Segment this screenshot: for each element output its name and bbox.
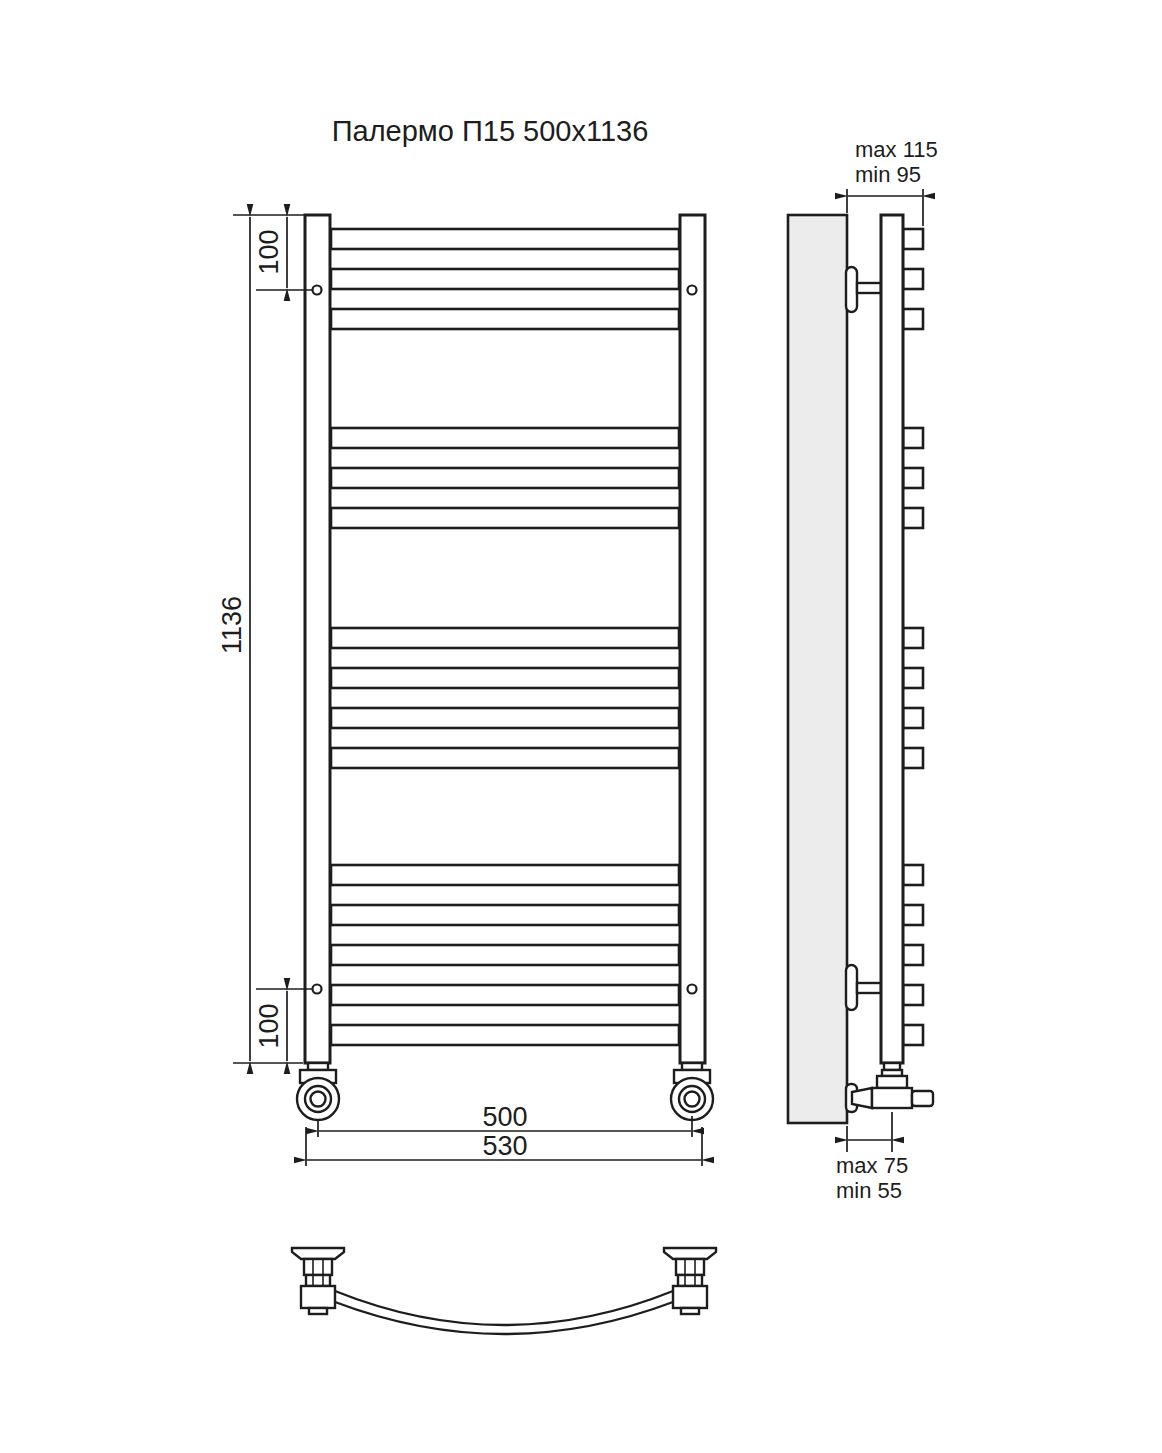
bracket-arm	[857, 283, 881, 293]
front-dimensions: 1136 100 100 500 530	[217, 215, 702, 1166]
dim-depth-top-max-label: max 115	[855, 137, 938, 162]
front-rung	[331, 508, 679, 528]
drawing-canvas: Палермо П15 500х1136 1136 100 100 500 53…	[0, 0, 1162, 1453]
mount-hole	[688, 286, 697, 295]
side-rung-stub	[903, 628, 923, 648]
valve-cone	[852, 1088, 872, 1108]
mount-hole	[313, 286, 322, 295]
dim-500-label: 500	[482, 1102, 527, 1132]
front-rung	[331, 985, 679, 1005]
bottom-fitting	[292, 1248, 344, 1314]
front-rung	[331, 309, 679, 329]
side-rung-stub	[903, 708, 923, 728]
dim-530-label: 530	[482, 1131, 527, 1161]
front-rung	[331, 668, 679, 688]
side-rung-stub	[903, 229, 923, 249]
front-rung	[331, 628, 679, 648]
bracket-plate	[846, 965, 857, 1010]
side-view: max 115 min 95 max 75 min 55	[788, 137, 938, 1203]
dim-depth-top-min-label: min 95	[855, 162, 921, 187]
side-rung-stub	[903, 985, 923, 1005]
front-rung	[331, 229, 679, 249]
side-rung-stub	[903, 748, 923, 768]
wall-bracket-top	[846, 267, 881, 312]
bottom-fittings	[292, 1248, 716, 1314]
side-rung-stub	[903, 1025, 923, 1045]
front-rung	[331, 1025, 679, 1045]
side-rung-stubs	[903, 229, 923, 1045]
dim-depth-bottom-max-label: max 75	[836, 1153, 908, 1178]
side-rung-stub	[903, 865, 923, 885]
valve-block	[877, 1076, 907, 1088]
curved-rung-top-edge	[335, 1291, 673, 1325]
side-valve	[846, 1063, 933, 1112]
front-rungs	[331, 229, 679, 1045]
side-rung-stub	[903, 945, 923, 965]
curved-rung-bottom-edge	[335, 1302, 673, 1334]
valve-body	[872, 1088, 912, 1108]
dim-depth-bottom-min-label: min 55	[836, 1178, 902, 1203]
side-rung-stub	[903, 269, 923, 289]
front-rung	[331, 905, 679, 925]
front-rung	[331, 269, 679, 289]
side-rung-stub	[903, 468, 923, 488]
left-post	[305, 215, 330, 1063]
front-rung	[331, 945, 679, 965]
dim-bottom-offset-label: 100	[254, 1003, 284, 1048]
front-valve	[671, 1063, 713, 1120]
side-rung-stub	[903, 428, 923, 448]
side-rung-stub	[903, 309, 923, 329]
wall-panel	[788, 215, 847, 1123]
front-view	[297, 215, 713, 1120]
bracket-plate	[846, 267, 857, 312]
bottom-fitting	[664, 1248, 716, 1314]
front-rung	[331, 468, 679, 488]
side-post	[881, 215, 903, 1063]
technical-drawing: Палермо П15 500х1136 1136 100 100 500 53…	[0, 0, 1162, 1453]
valve-handle	[912, 1091, 933, 1106]
side-rung-stub	[903, 508, 923, 528]
mount-hole	[688, 985, 697, 994]
drawing-title: Палермо П15 500х1136	[332, 115, 649, 147]
side-rung-stub	[903, 668, 923, 688]
side-rung-stub	[903, 905, 923, 925]
front-valve	[297, 1063, 339, 1120]
dim-top-offset-label: 100	[254, 229, 284, 274]
front-rung	[331, 865, 679, 885]
bottom-view	[292, 1248, 716, 1334]
dim-height-label: 1136	[217, 596, 247, 654]
mount-hole	[313, 985, 322, 994]
front-rung	[331, 708, 679, 728]
front-rung	[331, 428, 679, 448]
front-rung	[331, 748, 679, 768]
right-post	[680, 215, 705, 1063]
wall-bracket-bottom	[846, 965, 881, 1010]
bracket-arm	[857, 983, 881, 993]
